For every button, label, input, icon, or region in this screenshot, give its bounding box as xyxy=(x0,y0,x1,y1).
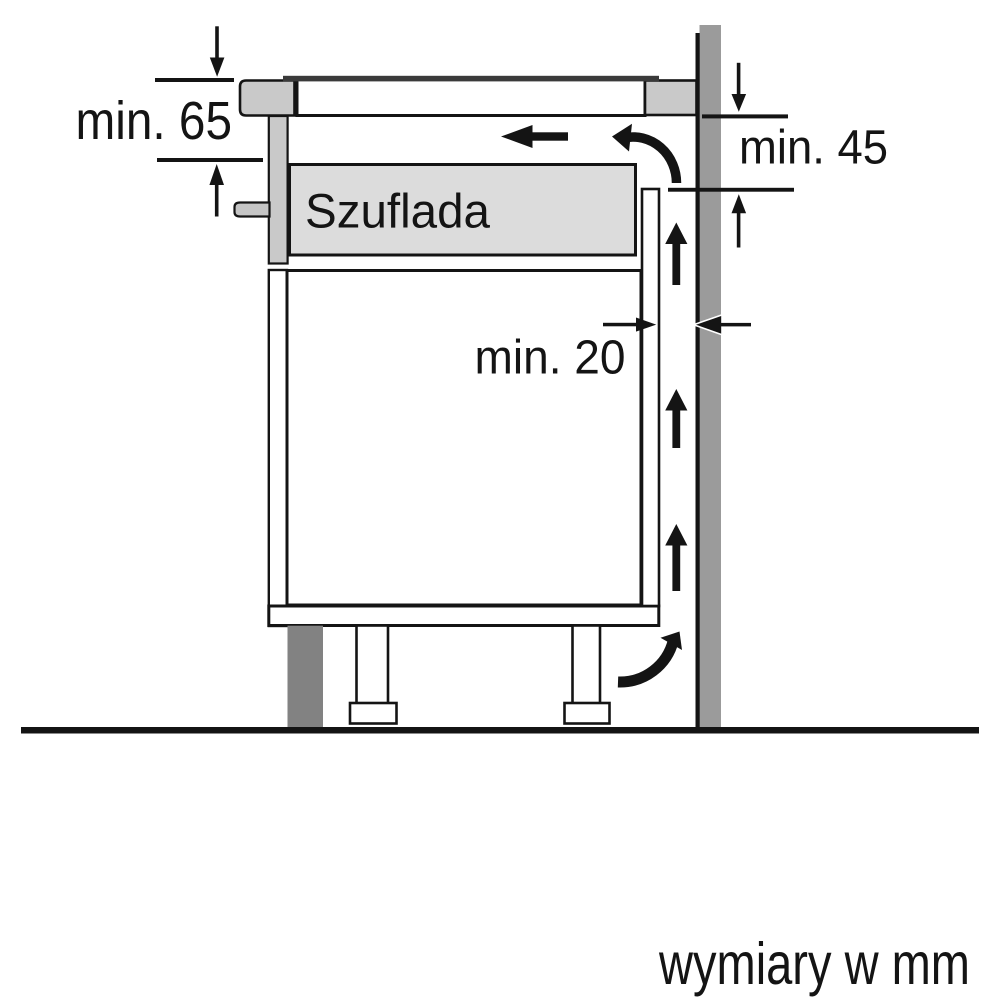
svg-text:min. 65: min. 65 xyxy=(76,91,233,151)
svg-text:min. 20: min. 20 xyxy=(475,332,626,385)
svg-text:min. 45: min. 45 xyxy=(739,122,888,175)
svg-text:wymiary w mm: wymiary w mm xyxy=(658,931,970,997)
svg-text:Szuflada: Szuflada xyxy=(305,186,490,239)
